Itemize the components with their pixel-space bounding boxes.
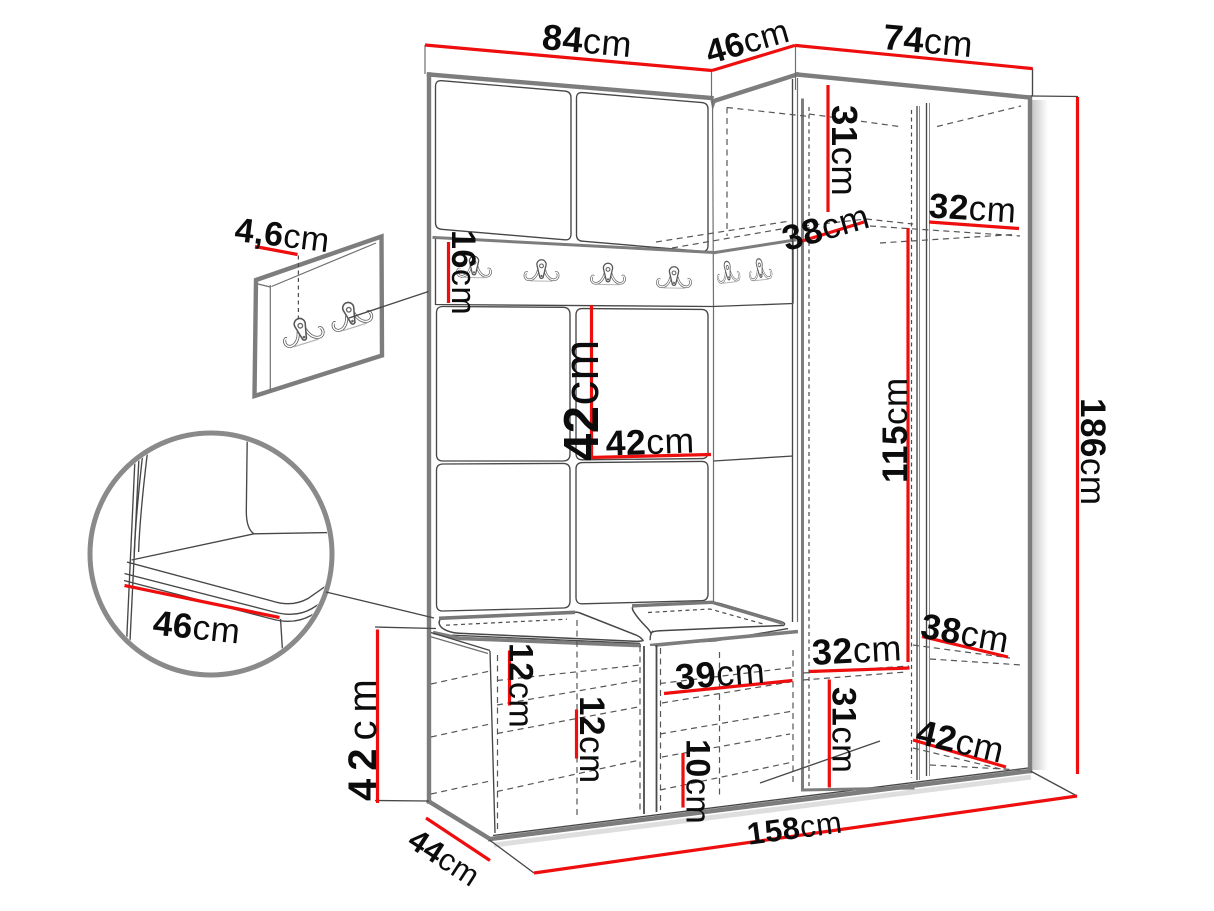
svg-text:42cm: 42cm — [605, 420, 695, 463]
svg-text:39cm: 39cm — [674, 650, 767, 698]
svg-text:42cm: 42cm — [555, 339, 609, 461]
svg-text:32cm: 32cm — [811, 627, 903, 673]
svg-text:42cm: 42cm — [341, 671, 385, 801]
svg-text:12cm: 12cm — [502, 643, 540, 728]
svg-text:16cm: 16cm — [444, 230, 482, 315]
svg-text:12cm: 12cm — [572, 696, 611, 784]
svg-text:186cm: 186cm — [1073, 398, 1112, 506]
svg-text:32cm: 32cm — [928, 186, 1018, 230]
svg-text:31cm: 31cm — [825, 687, 863, 773]
svg-text:31cm: 31cm — [824, 105, 865, 196]
svg-text:115cm: 115cm — [876, 377, 915, 483]
svg-text:10cm: 10cm — [679, 739, 717, 824]
svg-text:84cm: 84cm — [540, 16, 633, 65]
svg-text:74cm: 74cm — [881, 16, 974, 65]
